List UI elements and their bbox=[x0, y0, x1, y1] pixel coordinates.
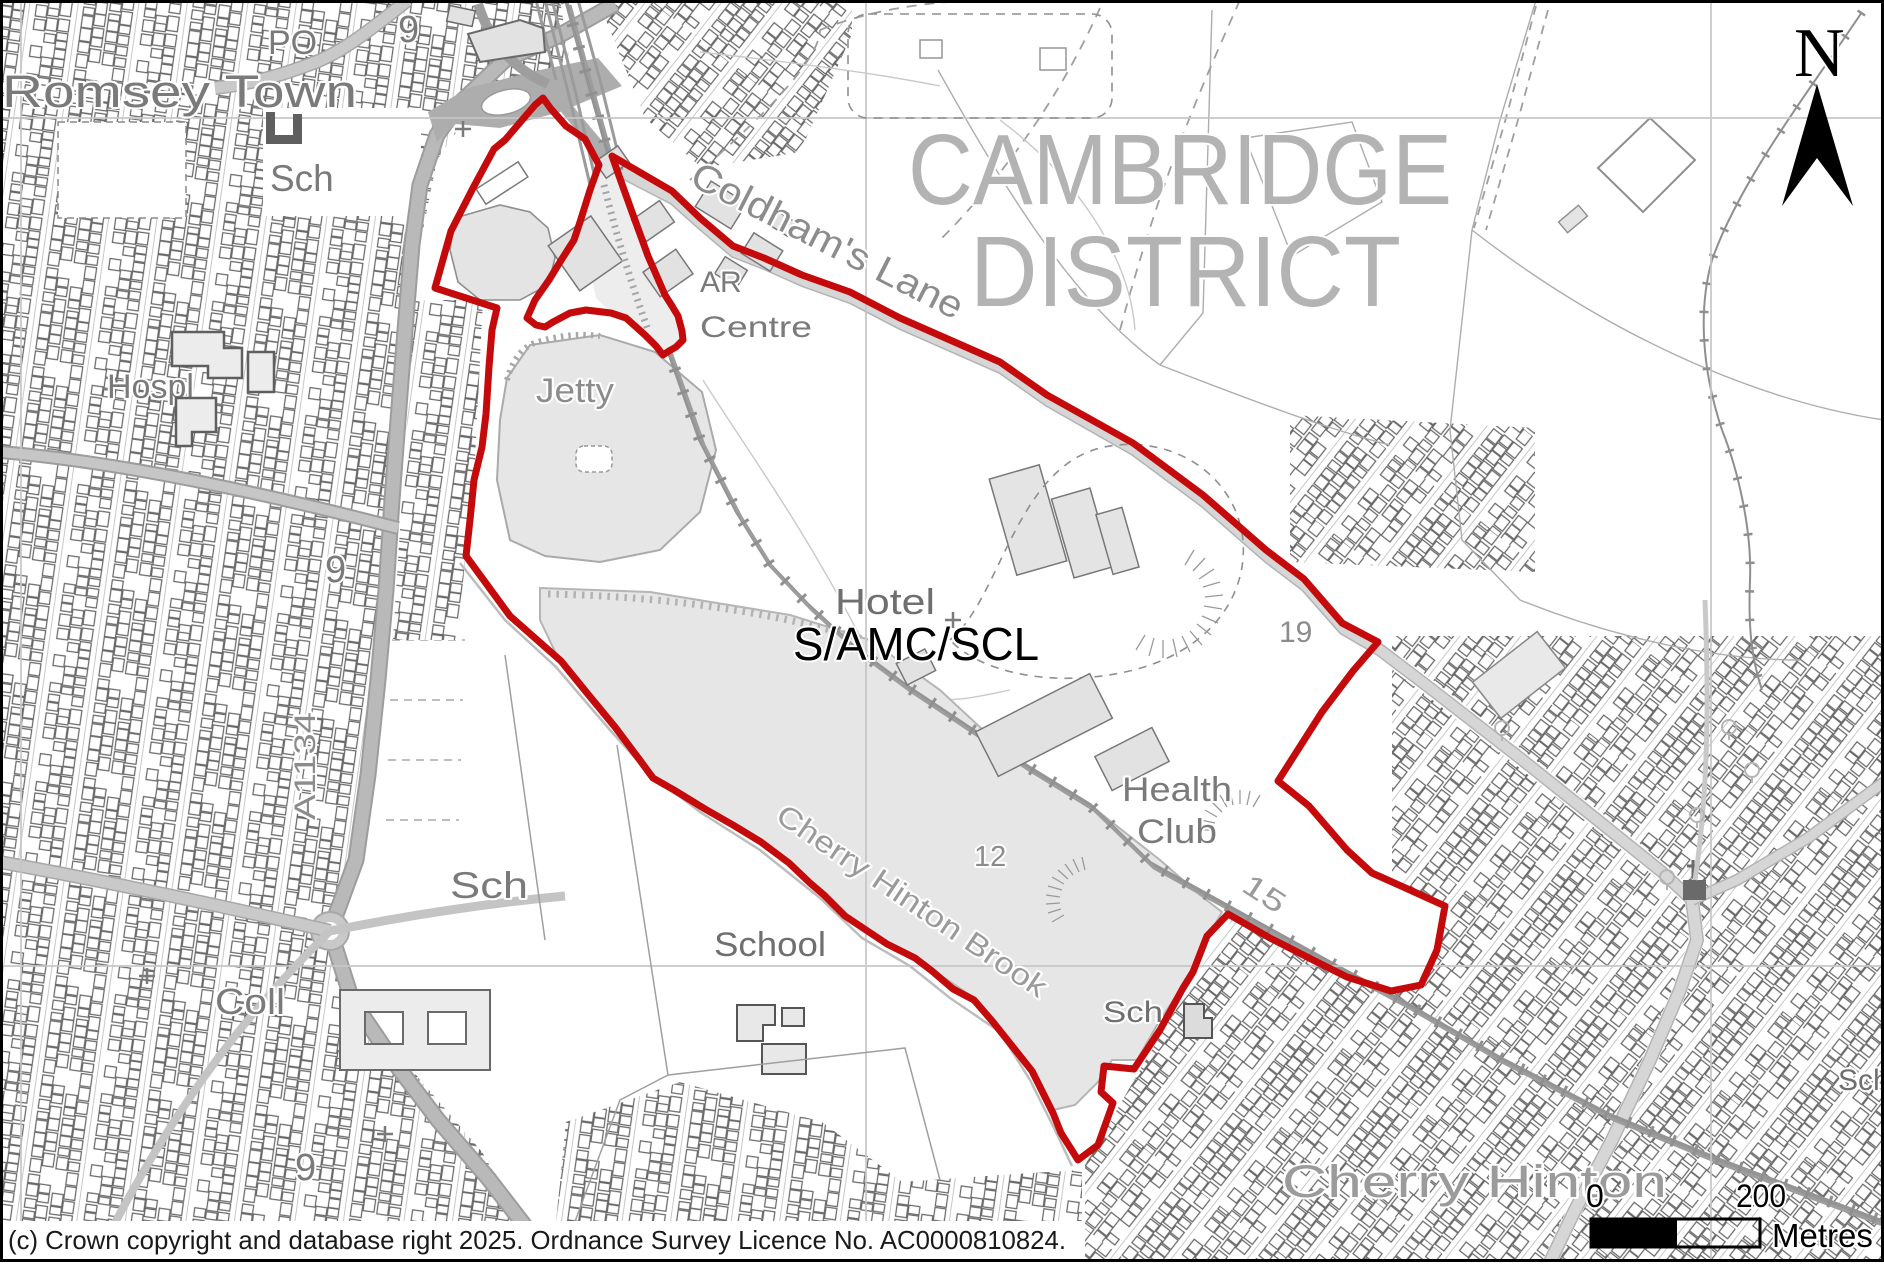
svg-text:Coll: Coll bbox=[215, 981, 285, 1022]
svg-text:9: 9 bbox=[295, 1147, 316, 1189]
svg-text:Hotel: Hotel bbox=[835, 581, 935, 622]
svg-text:Sch: Sch bbox=[450, 865, 528, 906]
svg-text:Romsey Town: Romsey Town bbox=[2, 66, 357, 117]
svg-text:Health: Health bbox=[1122, 771, 1232, 809]
svg-text:Metres: Metres bbox=[1772, 1217, 1873, 1254]
svg-text:N: N bbox=[1794, 15, 1845, 92]
svg-text:Centre: Centre bbox=[700, 311, 812, 344]
svg-text:A1134: A1134 bbox=[289, 712, 322, 820]
svg-text:School: School bbox=[714, 926, 826, 964]
svg-text:Jetty: Jetty bbox=[536, 372, 614, 410]
svg-text:0: 0 bbox=[1586, 1178, 1604, 1214]
svg-text:S/AMC/SCL: S/AMC/SCL bbox=[793, 618, 1039, 670]
svg-text:PO: PO bbox=[268, 24, 317, 62]
svg-text:Club: Club bbox=[1137, 813, 1217, 851]
svg-text:Sch: Sch bbox=[1838, 1064, 1884, 1097]
svg-text:9: 9 bbox=[325, 549, 346, 591]
svg-text:Sch: Sch bbox=[1103, 996, 1163, 1029]
svg-text:Sch: Sch bbox=[270, 158, 334, 199]
svg-text:(c) Crown copyright and databa: (c) Crown copyright and database right 2… bbox=[8, 1225, 1066, 1255]
svg-text:Cherry Hinton: Cherry Hinton bbox=[1282, 1156, 1667, 1207]
svg-text:19: 19 bbox=[1279, 616, 1312, 649]
svg-text:12: 12 bbox=[974, 841, 1006, 873]
svg-text:9: 9 bbox=[398, 9, 419, 51]
svg-text:CAMBRIDGE: CAMBRIDGE bbox=[908, 114, 1452, 226]
svg-text:200: 200 bbox=[1736, 1178, 1786, 1214]
svg-text:AR: AR bbox=[700, 266, 742, 299]
svg-text:DISTRICT: DISTRICT bbox=[970, 216, 1401, 328]
